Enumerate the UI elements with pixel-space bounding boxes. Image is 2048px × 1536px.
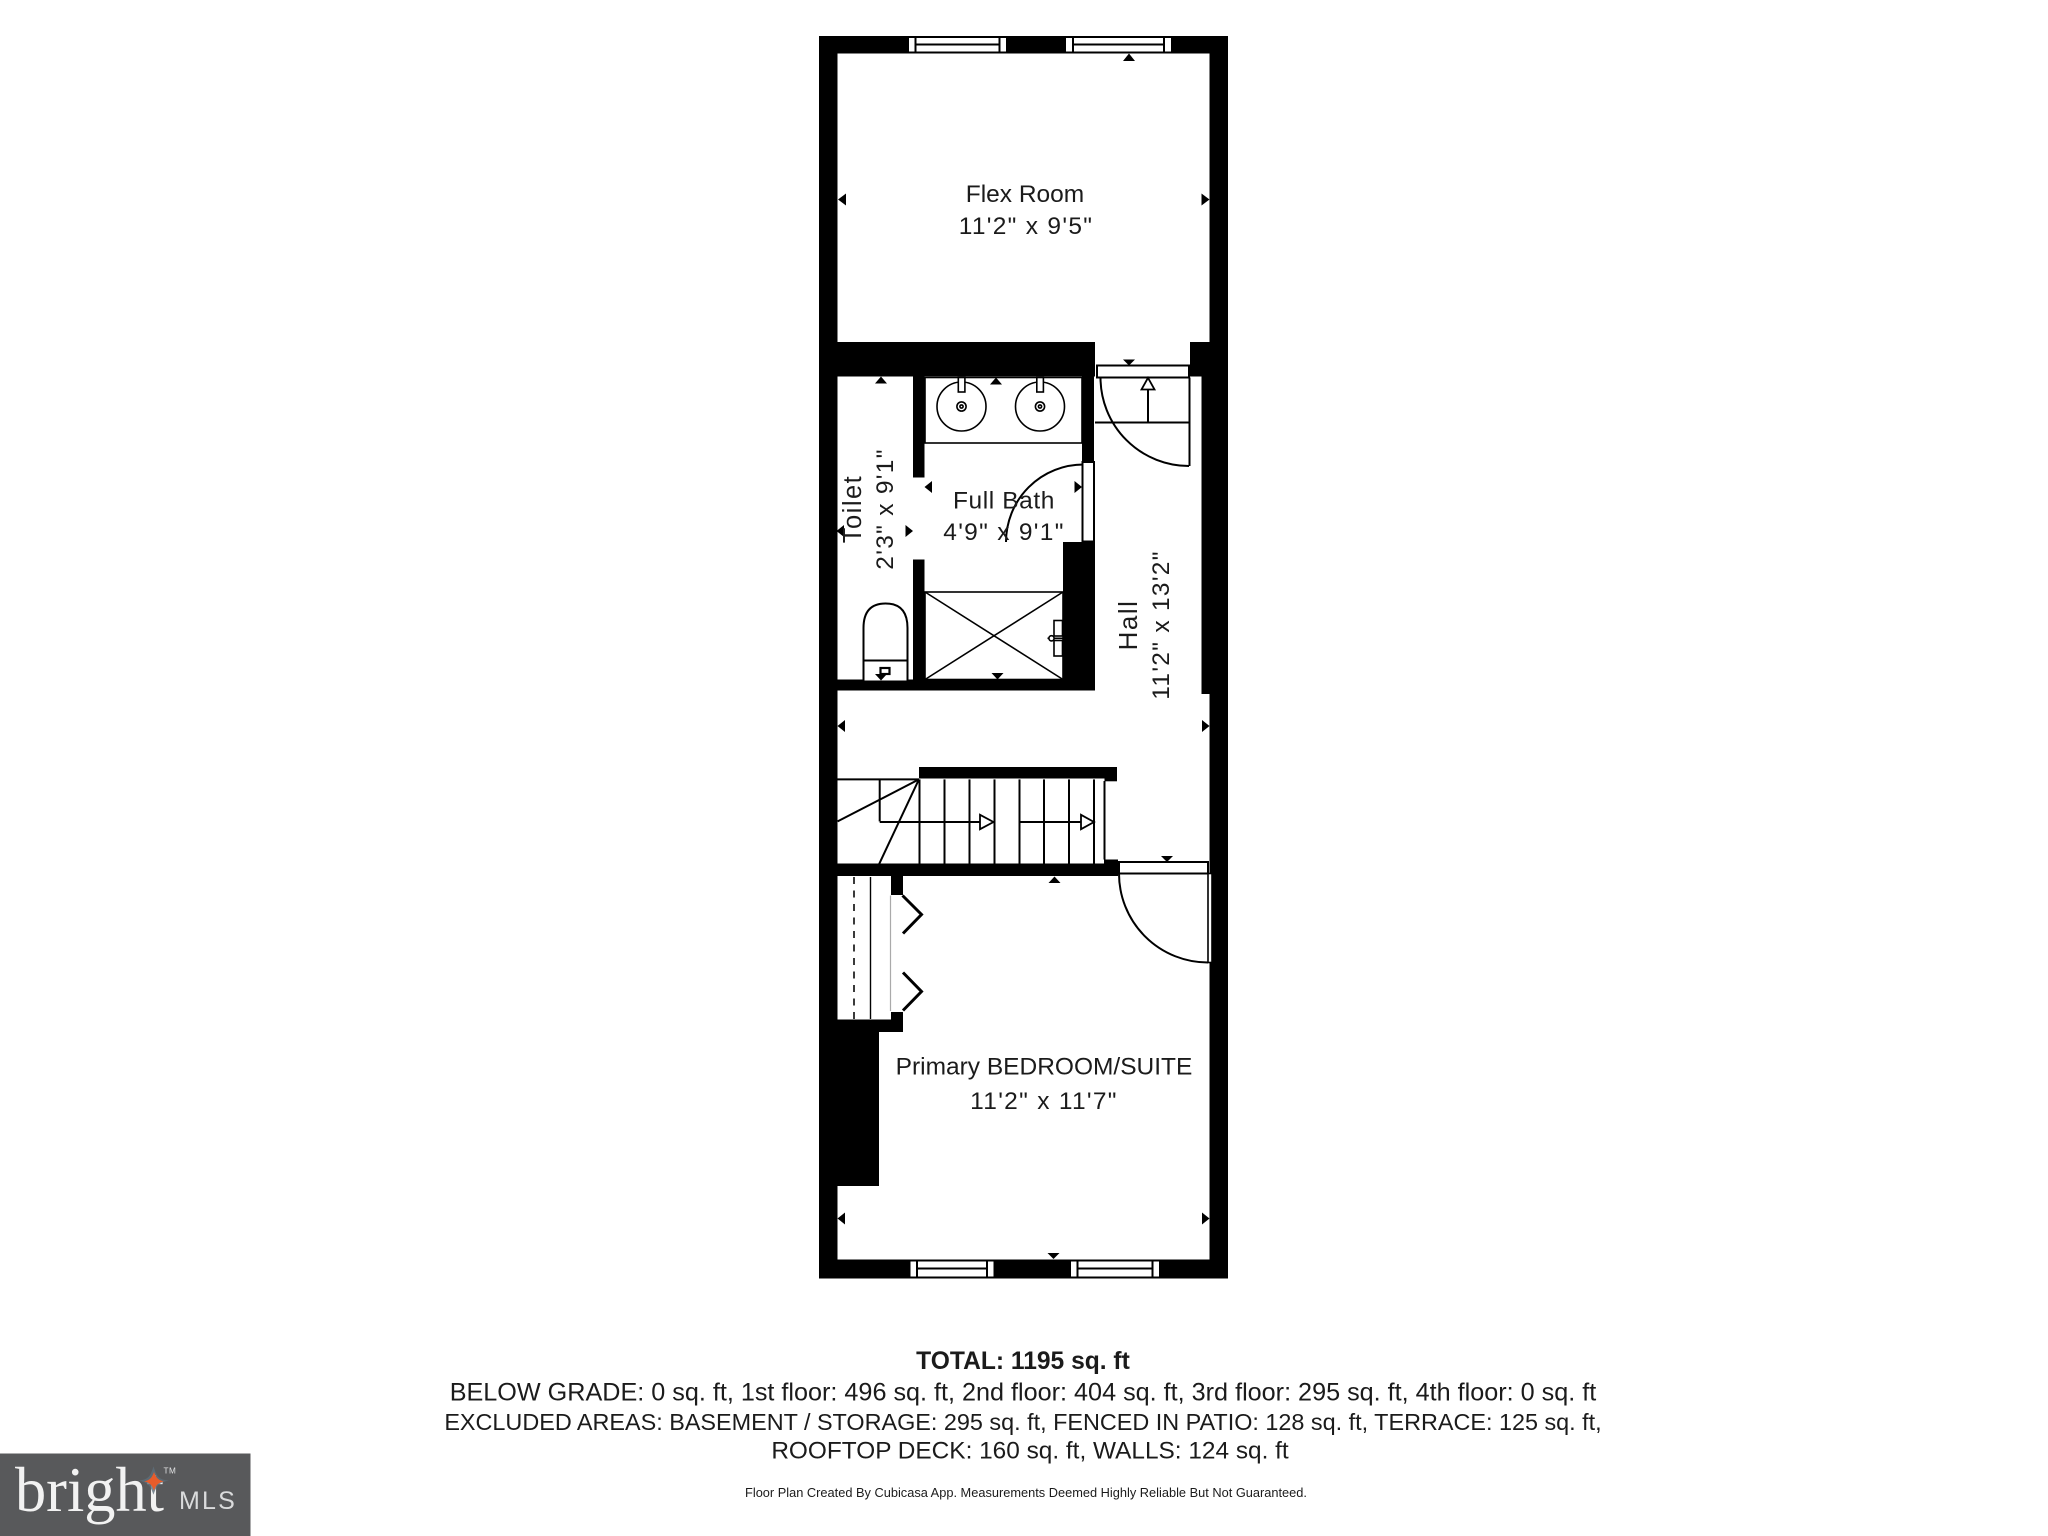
svg-text:Floor Plan Created By Cubicasa: Floor Plan Created By Cubicasa App. Meas… — [745, 1485, 1307, 1500]
svg-text:Toilet: Toilet — [839, 475, 867, 544]
svg-text:EXCLUDED AREAS: BASEMENT / STO: EXCLUDED AREAS: BASEMENT / STORAGE: 295 … — [444, 1409, 1601, 1435]
svg-text:Flex Room: Flex Room — [966, 181, 1084, 208]
svg-text:MLS: MLS — [179, 1487, 237, 1515]
svg-text:Full Bath: Full Bath — [953, 488, 1055, 515]
svg-text:Primary BEDROOM/SUITE: Primary BEDROOM/SUITE — [896, 1054, 1193, 1081]
svg-text:ROOFTOP DECK: 160 sq. ft, WALL: ROOFTOP DECK: 160 sq. ft, WALLS: 124 sq.… — [771, 1438, 1289, 1465]
svg-text:11'2" x 9'5": 11'2" x 9'5" — [959, 213, 1094, 240]
svg-text:bright: bright — [15, 1455, 164, 1525]
svg-text:2'3" x 9'1": 2'3" x 9'1" — [872, 448, 899, 569]
svg-text:11'2" x 11'7": 11'2" x 11'7" — [970, 1088, 1118, 1115]
svg-text:TM: TM — [164, 1467, 177, 1476]
svg-text:11'2" x 13'2": 11'2" x 13'2" — [1148, 550, 1175, 699]
svg-text:4'9" x 9'1": 4'9" x 9'1" — [943, 519, 1064, 546]
svg-text:BELOW GRADE: 0 sq. ft, 1st flo: BELOW GRADE: 0 sq. ft, 1st floor: 496 sq… — [450, 1379, 1597, 1407]
svg-text:Hall: Hall — [1113, 600, 1143, 651]
svg-text:TOTAL: 1195 sq. ft: TOTAL: 1195 sq. ft — [916, 1348, 1130, 1375]
